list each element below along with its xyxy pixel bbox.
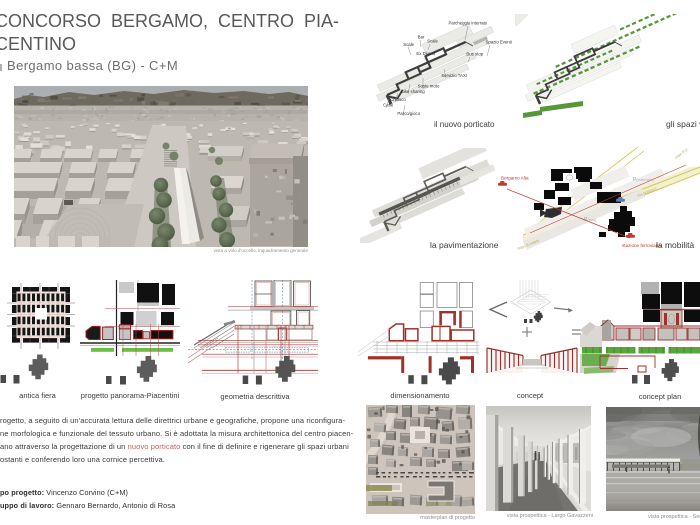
svg-text:Soste moto: Soste moto: [418, 84, 440, 89]
svg-text:Bike sharing: Bike sharing: [401, 89, 425, 94]
svg-text:Servizio TAXI: Servizio TAXI: [441, 73, 467, 78]
svg-text:Chiosco: Chiosco: [390, 97, 406, 102]
svg-text:Scale: Scale: [427, 39, 438, 44]
svg-text:viale P.G.: viale P.G.: [674, 147, 689, 160]
svg-text:Caffè: Caffè: [383, 103, 394, 108]
svg-text:Spazio Eventi: Spazio Eventi: [486, 40, 512, 45]
svg-text:Parco/gioco: Parco/gioco: [397, 111, 420, 116]
svg-text:Ex Diurno: Ex Diurno: [416, 51, 435, 56]
svg-text:Parcheggio interrato: Parcheggio interrato: [449, 21, 488, 26]
svg-text:Scale: Scale: [403, 42, 414, 47]
svg-text:Bergamo Alta: Bergamo Alta: [501, 176, 529, 181]
svg-text:Bar: Bar: [418, 35, 425, 40]
svg-text:Bus stop: Bus stop: [466, 52, 483, 57]
